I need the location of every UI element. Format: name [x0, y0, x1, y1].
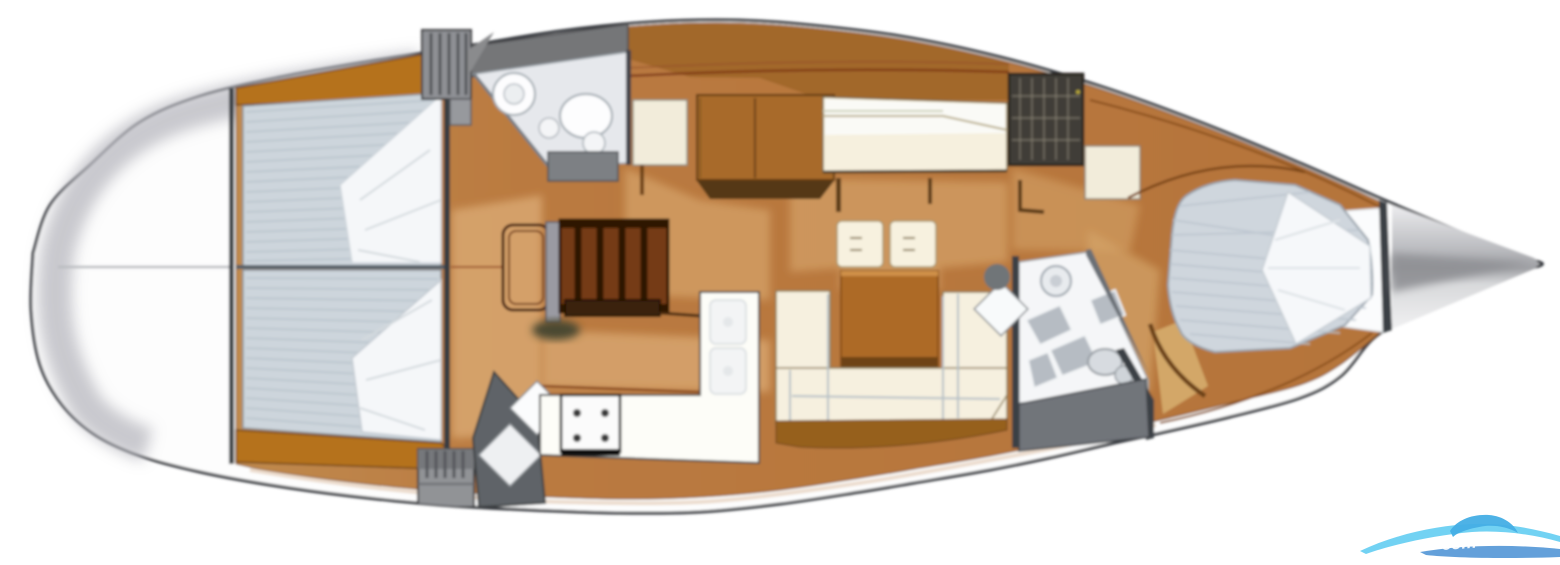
svg-text:com: com: [1441, 533, 1477, 554]
